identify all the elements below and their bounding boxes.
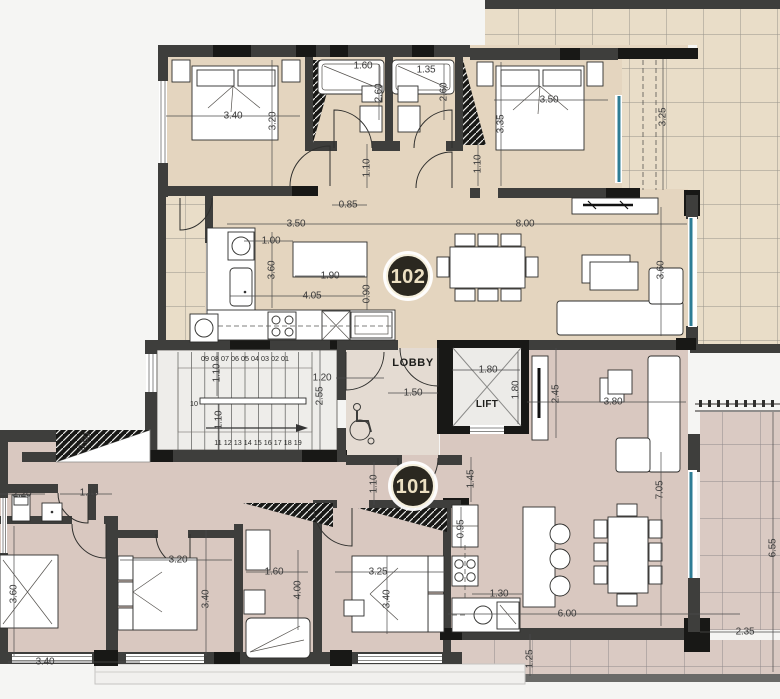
kitchen-sink xyxy=(230,268,252,306)
dimension-label: 3.40 xyxy=(224,111,243,122)
dimension-label: 2.60 xyxy=(439,82,450,101)
dimension-label: 1.60 xyxy=(265,567,284,578)
stair-numbers-flight1: 09 08 07 06 05 04 03 02 01 xyxy=(201,354,289,363)
dimension-label: 1.30 xyxy=(490,589,509,600)
dimension-label: 3.35 xyxy=(496,114,507,133)
tv-sideboard-102 xyxy=(572,198,658,214)
bedroom-101-mid-bed xyxy=(118,556,197,630)
dimension-label: 4.00 xyxy=(293,580,304,599)
unit-102-number: 102 xyxy=(391,266,426,288)
bottom-ledge xyxy=(95,664,525,684)
dimension-label: 0.90 xyxy=(362,284,373,303)
dimension-label: 1.60 xyxy=(354,61,373,72)
unit-101-badge: 101 xyxy=(388,461,438,511)
dimension-label: 3.40 xyxy=(36,657,55,668)
dimension-label: 1.80 xyxy=(511,380,522,399)
floor-plan-canvas: 09 08 07 06 05 04 03 02 01 10 11 12 13 1… xyxy=(0,0,780,699)
unit-102-badge: 102 xyxy=(383,251,433,301)
dimension-label: 1.35 xyxy=(417,65,436,76)
dimension-label: 4.05 xyxy=(303,291,322,302)
dimension-label: 1.10 xyxy=(473,154,484,173)
dimension-label: 8.00 xyxy=(516,219,535,230)
dimension-label: 3.80 xyxy=(604,397,623,408)
dimension-label: 2.45 xyxy=(551,384,562,403)
dimension-label: 7.05 xyxy=(655,480,666,499)
stair-number-landing: 10 xyxy=(190,399,198,408)
dimension-label: 2.55 xyxy=(315,386,326,405)
bar-stool xyxy=(550,576,570,596)
lift-label: LIFT xyxy=(476,399,498,410)
bedroom-tr-bed xyxy=(477,62,603,150)
dimension-label: 1.10 xyxy=(212,363,223,382)
bedroom-101-right-bed xyxy=(344,556,444,632)
dimension-label: 3.60 xyxy=(267,260,278,279)
bar-stool xyxy=(550,549,570,569)
dimension-label: 1.90 xyxy=(321,271,340,282)
dimension-label: 1.20 xyxy=(313,373,332,384)
dimension-label: 3.25 xyxy=(369,567,388,578)
dimension-label: 3.40 xyxy=(201,589,212,608)
dimension-label: 3.50 xyxy=(540,95,559,106)
dimension-label: 3.60 xyxy=(9,584,20,603)
dimension-label: 3.20 xyxy=(268,111,279,130)
dimension-label: 1.50 xyxy=(404,388,423,399)
dimension-label: 2.60 xyxy=(374,83,385,102)
dimension-label: 1.45 xyxy=(466,469,477,488)
dimension-label: 3.40 xyxy=(382,589,393,608)
dimension-label: 3.25 xyxy=(658,107,669,126)
floor-plan-drawing: 09 08 07 06 05 04 03 02 01 10 11 12 13 1… xyxy=(0,0,780,699)
dimension-label: 3.20 xyxy=(169,555,188,566)
dimension-label: 2.20 xyxy=(13,489,32,500)
dimension-label: 6.00 xyxy=(558,609,577,620)
bar-stool xyxy=(550,524,570,544)
dimension-label: 1.00 xyxy=(262,236,281,247)
lobby-label: LOBBY xyxy=(392,357,434,369)
dimension-label: 1.25 xyxy=(525,649,536,668)
dimension-label: 6.55 xyxy=(768,538,779,557)
stair-numbers-flight2: 11 12 13 14 15 16 17 18 19 xyxy=(214,438,301,447)
dimension-label: 2.35 xyxy=(736,627,755,638)
dimension-label: 0.95 xyxy=(456,519,467,538)
dimension-label: 1.80 xyxy=(479,365,498,376)
shower-tray xyxy=(246,618,310,658)
dimension-label: 1.10 xyxy=(214,410,225,429)
dimension-label: 3.60 xyxy=(656,260,667,279)
stair-handrail xyxy=(200,398,306,404)
dimension-label: 1.10 xyxy=(362,158,373,177)
dimension-label: 3.50 xyxy=(287,219,306,230)
dimension-label: 1.10 xyxy=(369,474,380,493)
dimension-label: 1.10 xyxy=(80,488,99,499)
washing-machine-balcony xyxy=(190,314,218,342)
dimension-label: 0.85 xyxy=(339,200,358,211)
terrace-102-inner xyxy=(622,59,688,189)
unit-101-number: 101 xyxy=(396,476,431,498)
sofa-101 xyxy=(648,356,680,472)
